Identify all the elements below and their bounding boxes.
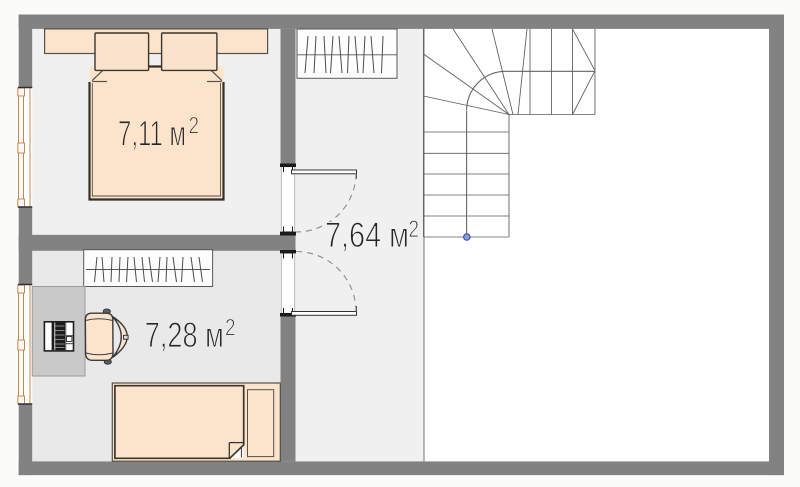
svg-text:7,28 м: 7,28 м <box>145 316 224 355</box>
svg-text:2: 2 <box>225 315 236 342</box>
svg-text:7,64 м: 7,64 м <box>325 216 409 255</box>
svg-text:7,11 м: 7,11 м <box>118 115 186 154</box>
svg-text:2: 2 <box>189 113 200 140</box>
svg-text:2: 2 <box>409 216 420 243</box>
